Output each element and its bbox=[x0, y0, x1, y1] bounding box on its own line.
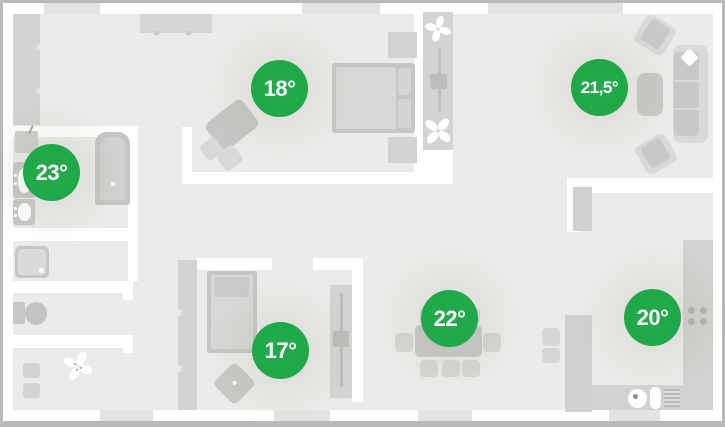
room-temp-badge-kids-room[interactable]: 17° bbox=[252, 322, 309, 379]
shower bbox=[15, 246, 49, 278]
room-temp-badge-dining-area[interactable]: 22° bbox=[421, 290, 478, 347]
entry-cabinet bbox=[23, 383, 40, 398]
wall-stub bbox=[123, 293, 133, 300]
wall-kidsroom-top-left bbox=[197, 258, 272, 270]
plant-icon bbox=[425, 16, 451, 42]
sofa-seam bbox=[674, 108, 699, 110]
window bbox=[609, 410, 660, 421]
wardrobe-notch bbox=[37, 88, 40, 94]
plant-icon bbox=[63, 351, 93, 381]
room-temp-badge-bedroom[interactable]: 18° bbox=[251, 60, 308, 117]
kitchen-door bbox=[573, 187, 592, 231]
room-temp-badge-kitchen[interactable]: 20° bbox=[624, 289, 681, 346]
plant-icon bbox=[423, 116, 453, 146]
toilet-tank bbox=[13, 302, 25, 324]
window bbox=[418, 410, 472, 421]
stool bbox=[542, 328, 560, 346]
window bbox=[100, 410, 153, 421]
window bbox=[44, 3, 100, 14]
washer-dot bbox=[633, 394, 638, 399]
shower-drain bbox=[39, 268, 44, 273]
sideboard bbox=[140, 14, 212, 33]
nightstand bbox=[388, 32, 417, 58]
strip-notch bbox=[178, 309, 181, 316]
wall-stub bbox=[123, 348, 133, 353]
kidsroom-left-strip bbox=[178, 260, 197, 410]
wall-kidsroom-top-right bbox=[313, 258, 363, 270]
entry-cabinet bbox=[23, 363, 40, 378]
sofa bbox=[673, 45, 708, 143]
bed-pillow bbox=[398, 68, 411, 95]
vent-grate bbox=[664, 389, 680, 407]
sideboard-foot bbox=[186, 31, 191, 35]
wall-bedroom-living-foot bbox=[423, 150, 453, 184]
floorplan-canvas: 18° 21,5° 23° 17° 22° 20° bbox=[0, 0, 725, 427]
bed-pillow bbox=[398, 99, 411, 128]
wardrobe-handle bbox=[430, 74, 447, 89]
wall-shower-wc bbox=[13, 281, 133, 293]
sofa-seam bbox=[674, 80, 699, 82]
nightstand bbox=[388, 137, 417, 163]
wall-wc-entry bbox=[13, 335, 133, 348]
window bbox=[302, 3, 380, 14]
wardrobe-notch bbox=[37, 44, 40, 50]
room-temp-badge-bathroom[interactable]: 23° bbox=[23, 144, 80, 201]
wall-bedroom-bottom bbox=[182, 172, 414, 184]
stool bbox=[542, 348, 560, 363]
wall-bedroom-return bbox=[182, 127, 192, 172]
sideboard-foot bbox=[154, 31, 159, 35]
strip-notch bbox=[178, 365, 181, 372]
toilet-bowl bbox=[25, 302, 47, 325]
room-temp-badge-living-room[interactable]: 21,5° bbox=[571, 59, 628, 116]
